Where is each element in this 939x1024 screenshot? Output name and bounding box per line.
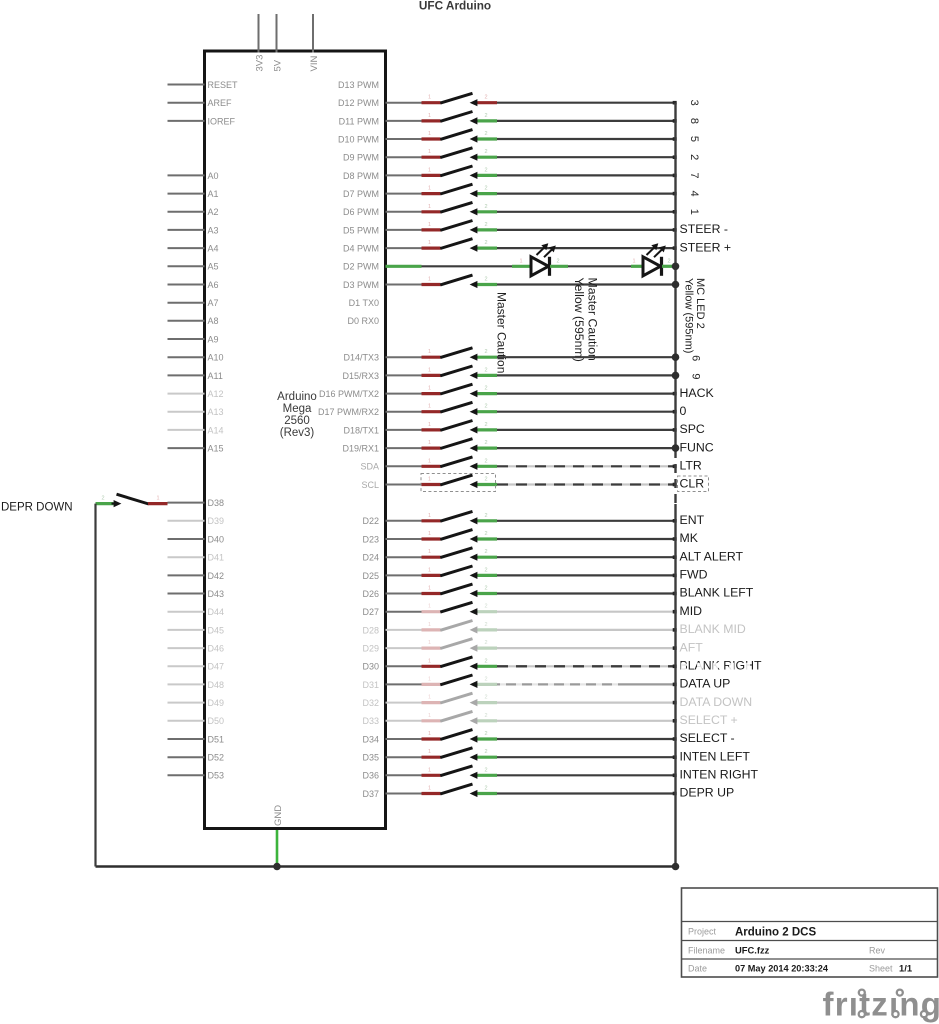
svg-text:1: 1 bbox=[428, 186, 431, 192]
svg-text:D45: D45 bbox=[208, 625, 225, 635]
svg-text:D32: D32 bbox=[362, 698, 379, 708]
svg-text:AFT: AFT bbox=[680, 640, 704, 654]
svg-text:CLR: CLR bbox=[680, 477, 705, 491]
svg-text:INTEN LEFT: INTEN LEFT bbox=[680, 749, 751, 763]
svg-text:D53: D53 bbox=[208, 771, 225, 781]
svg-text:DATA UP: DATA UP bbox=[680, 677, 731, 691]
svg-text:INTEN RIGHT: INTEN RIGHT bbox=[680, 768, 759, 782]
svg-text:D47: D47 bbox=[208, 662, 225, 672]
svg-text:D25: D25 bbox=[362, 571, 379, 581]
svg-text:MC LED 2: MC LED 2 bbox=[694, 278, 706, 329]
svg-text:1: 1 bbox=[428, 513, 431, 519]
svg-text:1: 1 bbox=[428, 240, 431, 246]
svg-text:D8 PWM: D8 PWM bbox=[343, 171, 379, 181]
svg-text:D15/RX3: D15/RX3 bbox=[342, 371, 379, 381]
svg-text:2: 2 bbox=[484, 640, 487, 646]
svg-text:D27: D27 bbox=[362, 607, 379, 617]
svg-text:Master Caution: Master Caution bbox=[495, 292, 509, 373]
svg-text:2: 2 bbox=[484, 713, 487, 719]
svg-text:2560: 2560 bbox=[284, 415, 310, 427]
svg-text:2: 2 bbox=[484, 95, 487, 101]
svg-text:2: 2 bbox=[484, 113, 487, 119]
svg-text:1/1: 1/1 bbox=[899, 963, 912, 974]
svg-text:D1 TX0: D1 TX0 bbox=[349, 298, 379, 308]
svg-text:2: 2 bbox=[484, 658, 487, 664]
svg-text:D19/RX1: D19/RX1 bbox=[342, 444, 379, 454]
svg-text:2: 2 bbox=[484, 477, 487, 483]
svg-text:1: 1 bbox=[428, 277, 431, 283]
svg-text:D35: D35 bbox=[362, 753, 379, 763]
svg-text:A10: A10 bbox=[208, 353, 224, 363]
svg-text:Yellow (595nm): Yellow (595nm) bbox=[572, 278, 586, 362]
svg-text:D49: D49 bbox=[208, 698, 225, 708]
svg-text:1: 1 bbox=[428, 786, 431, 792]
svg-text:D14/TX3: D14/TX3 bbox=[343, 353, 379, 363]
svg-text:A1: A1 bbox=[208, 189, 219, 199]
svg-text:2: 2 bbox=[101, 496, 104, 502]
svg-text:D6 PWM: D6 PWM bbox=[343, 207, 379, 217]
svg-text:2: 2 bbox=[484, 167, 487, 173]
svg-text:A6: A6 bbox=[208, 280, 219, 290]
svg-text:BLANK LEFT: BLANK LEFT bbox=[680, 586, 754, 600]
svg-text:D24: D24 bbox=[362, 553, 379, 563]
svg-text:2: 2 bbox=[484, 404, 487, 410]
svg-text:D38: D38 bbox=[208, 498, 225, 508]
svg-text:1: 1 bbox=[428, 458, 431, 464]
svg-text:2: 2 bbox=[484, 277, 487, 283]
svg-text:5: 5 bbox=[688, 136, 700, 142]
svg-text:A14: A14 bbox=[208, 425, 224, 435]
svg-text:1: 1 bbox=[428, 658, 431, 664]
svg-text:D16 PWM/TX2: D16 PWM/TX2 bbox=[319, 389, 379, 399]
svg-text:AREF: AREF bbox=[208, 98, 233, 108]
svg-text:2: 2 bbox=[484, 622, 487, 628]
svg-text:LTR: LTR bbox=[680, 459, 702, 473]
svg-text:A9: A9 bbox=[208, 334, 219, 344]
svg-text:1: 1 bbox=[428, 440, 431, 446]
svg-text:D43: D43 bbox=[208, 589, 225, 599]
svg-text:D48: D48 bbox=[208, 680, 225, 690]
svg-text:2: 2 bbox=[484, 440, 487, 446]
svg-text:07 May 2014 20:33:24: 07 May 2014 20:33:24 bbox=[735, 964, 829, 974]
svg-text:ALT ALERT: ALT ALERT bbox=[680, 549, 744, 563]
svg-text:D10 PWM: D10 PWM bbox=[338, 134, 379, 144]
svg-text:A15: A15 bbox=[208, 444, 224, 454]
svg-text:D51: D51 bbox=[208, 734, 225, 744]
svg-text:SPC: SPC bbox=[680, 422, 705, 436]
svg-text:1: 1 bbox=[428, 567, 431, 573]
svg-text:1: 1 bbox=[428, 167, 431, 173]
svg-text:1: 1 bbox=[428, 349, 431, 355]
svg-text:4: 4 bbox=[688, 191, 700, 197]
svg-text:1: 1 bbox=[428, 749, 431, 755]
svg-text:D18/TX1: D18/TX1 bbox=[343, 425, 379, 435]
svg-text:2: 2 bbox=[688, 154, 700, 160]
svg-text:D50: D50 bbox=[208, 716, 225, 726]
svg-text:1: 1 bbox=[428, 586, 431, 592]
svg-text:1: 1 bbox=[519, 258, 522, 264]
svg-text:1: 1 bbox=[428, 404, 431, 410]
svg-text:1: 1 bbox=[428, 531, 431, 537]
svg-text:D0 RX0: D0 RX0 bbox=[347, 316, 379, 326]
svg-text:1: 1 bbox=[428, 622, 431, 628]
svg-text:2: 2 bbox=[484, 549, 487, 555]
svg-text:(Rev3): (Rev3) bbox=[280, 427, 315, 439]
svg-text:1: 1 bbox=[428, 113, 431, 119]
svg-text:A12: A12 bbox=[208, 389, 224, 399]
svg-text:D31: D31 bbox=[362, 680, 379, 690]
svg-text:Arduino: Arduino bbox=[277, 391, 317, 403]
svg-text:A13: A13 bbox=[208, 407, 224, 417]
svg-text:SELECT -: SELECT - bbox=[680, 731, 735, 745]
svg-text:D28: D28 bbox=[362, 625, 379, 635]
svg-text:1: 1 bbox=[428, 95, 431, 101]
svg-text:A3: A3 bbox=[208, 225, 219, 235]
svg-text:Yellow (595nm): Yellow (595nm) bbox=[683, 278, 695, 353]
svg-text:Arduino 2 DCS: Arduino 2 DCS bbox=[735, 927, 816, 939]
svg-text:2: 2 bbox=[484, 586, 487, 592]
svg-text:D33: D33 bbox=[362, 716, 379, 726]
svg-text:2: 2 bbox=[484, 531, 487, 537]
svg-text:D26: D26 bbox=[362, 589, 379, 599]
svg-text:STEER +: STEER + bbox=[680, 240, 732, 254]
svg-text:A4: A4 bbox=[208, 244, 219, 254]
svg-text:D46: D46 bbox=[208, 644, 225, 654]
svg-text:2: 2 bbox=[484, 786, 487, 792]
svg-text:GND: GND bbox=[273, 805, 284, 826]
svg-text:Mega: Mega bbox=[283, 403, 312, 415]
svg-text:Sheet: Sheet bbox=[869, 964, 893, 974]
svg-text:1: 1 bbox=[428, 422, 431, 428]
svg-text:2: 2 bbox=[484, 204, 487, 210]
svg-text:D11 PWM: D11 PWM bbox=[339, 116, 379, 126]
svg-text:A0: A0 bbox=[208, 171, 219, 181]
svg-text:1: 1 bbox=[428, 477, 431, 483]
svg-text:1: 1 bbox=[428, 204, 431, 210]
svg-text:5V: 5V bbox=[273, 59, 284, 71]
svg-text:D40: D40 bbox=[208, 534, 225, 544]
svg-text:Rev: Rev bbox=[869, 946, 886, 956]
svg-text:FWD: FWD bbox=[680, 568, 708, 582]
svg-text:RESET: RESET bbox=[208, 80, 239, 90]
svg-text:1: 1 bbox=[428, 149, 431, 155]
svg-text:IOREF: IOREF bbox=[208, 116, 236, 126]
svg-text:D5 PWM: D5 PWM bbox=[343, 225, 379, 235]
svg-text:2: 2 bbox=[484, 386, 487, 392]
svg-text:SCL: SCL bbox=[361, 480, 379, 490]
svg-text:6: 6 bbox=[690, 355, 702, 361]
svg-text:DEPR DOWN: DEPR DOWN bbox=[1, 502, 73, 514]
svg-text:1: 1 bbox=[428, 222, 431, 228]
svg-text:1: 1 bbox=[428, 767, 431, 773]
svg-text:2: 2 bbox=[484, 367, 487, 373]
svg-text:STEER -: STEER - bbox=[680, 222, 729, 236]
svg-text:Date: Date bbox=[688, 964, 707, 974]
svg-text:HACK: HACK bbox=[680, 386, 715, 400]
svg-text:A5: A5 bbox=[208, 262, 219, 272]
svg-text:D17 PWM/RX2: D17 PWM/RX2 bbox=[318, 407, 379, 417]
svg-text:Master Caution: Master Caution bbox=[586, 278, 600, 362]
svg-text:MID: MID bbox=[680, 604, 703, 618]
svg-text:D37: D37 bbox=[362, 789, 379, 799]
svg-text:1: 1 bbox=[428, 367, 431, 373]
svg-text:1: 1 bbox=[428, 676, 431, 682]
svg-text:2: 2 bbox=[484, 567, 487, 573]
svg-text:D7 PWM: D7 PWM bbox=[343, 189, 379, 199]
svg-text:2: 2 bbox=[484, 131, 487, 137]
svg-text:D22: D22 bbox=[362, 516, 379, 526]
svg-text:2: 2 bbox=[484, 422, 487, 428]
svg-text:SDA: SDA bbox=[360, 462, 379, 472]
svg-text:D36: D36 bbox=[362, 771, 379, 781]
svg-text:A11: A11 bbox=[208, 371, 223, 381]
svg-text:3: 3 bbox=[688, 100, 700, 106]
svg-text:D13 PWM: D13 PWM bbox=[338, 80, 379, 90]
svg-text:2: 2 bbox=[484, 767, 487, 773]
svg-text:DATA DOWN: DATA DOWN bbox=[680, 695, 753, 709]
svg-text:ENT: ENT bbox=[680, 513, 705, 527]
svg-text:UFC.fzz: UFC.fzz bbox=[735, 945, 770, 956]
svg-text:2: 2 bbox=[484, 676, 487, 682]
svg-text:1: 1 bbox=[428, 604, 431, 610]
svg-text:SELECT +: SELECT + bbox=[680, 713, 738, 727]
svg-text:9: 9 bbox=[690, 373, 702, 379]
svg-text:D23: D23 bbox=[362, 534, 379, 544]
svg-text:D52: D52 bbox=[208, 753, 225, 763]
svg-text:DEPR UP: DEPR UP bbox=[680, 786, 735, 800]
svg-text:D34: D34 bbox=[362, 734, 379, 744]
svg-text:D12 PWM: D12 PWM bbox=[338, 98, 379, 108]
svg-text:7: 7 bbox=[688, 172, 700, 178]
svg-text:UFC Arduino: UFC Arduino bbox=[419, 0, 491, 13]
svg-text:A8: A8 bbox=[208, 316, 219, 326]
svg-text:1: 1 bbox=[632, 258, 635, 264]
svg-text:D30: D30 bbox=[362, 662, 379, 672]
svg-text:2: 2 bbox=[484, 695, 487, 701]
svg-text:Project: Project bbox=[688, 927, 717, 937]
svg-text:1: 1 bbox=[428, 731, 431, 737]
svg-text:D4 PWM: D4 PWM bbox=[343, 244, 379, 254]
svg-text:2: 2 bbox=[556, 258, 559, 264]
svg-text:D39: D39 bbox=[208, 516, 225, 526]
svg-text:2: 2 bbox=[484, 604, 487, 610]
svg-text:VIN: VIN bbox=[309, 56, 320, 72]
svg-text:0: 0 bbox=[680, 404, 687, 418]
svg-text:2: 2 bbox=[484, 349, 487, 355]
svg-text:2: 2 bbox=[484, 749, 487, 755]
svg-text:1: 1 bbox=[688, 209, 700, 215]
svg-text:2: 2 bbox=[484, 149, 487, 155]
svg-text:D2 PWM: D2 PWM bbox=[343, 262, 379, 272]
svg-text:FUNC: FUNC bbox=[680, 440, 714, 454]
svg-text:D3 PWM: D3 PWM bbox=[343, 280, 379, 290]
svg-text:2: 2 bbox=[484, 731, 487, 737]
svg-text:3V3: 3V3 bbox=[255, 55, 266, 72]
svg-text:2: 2 bbox=[484, 458, 487, 464]
svg-text:BLANK MID: BLANK MID bbox=[680, 622, 746, 636]
svg-text:Filename: Filename bbox=[688, 946, 725, 956]
svg-text:1: 1 bbox=[428, 640, 431, 646]
svg-text:D42: D42 bbox=[208, 571, 225, 581]
svg-text:2: 2 bbox=[667, 258, 670, 264]
svg-text:2: 2 bbox=[484, 186, 487, 192]
svg-text:1: 1 bbox=[428, 695, 431, 701]
svg-text:MK: MK bbox=[680, 531, 699, 545]
svg-text:1: 1 bbox=[428, 131, 431, 137]
svg-text:D29: D29 bbox=[362, 644, 379, 654]
svg-text:8: 8 bbox=[688, 118, 700, 124]
svg-text:2: 2 bbox=[484, 222, 487, 228]
svg-text:D44: D44 bbox=[208, 607, 225, 617]
svg-text:1: 1 bbox=[428, 549, 431, 555]
svg-text:D41: D41 bbox=[208, 553, 225, 563]
svg-text:2: 2 bbox=[484, 513, 487, 519]
svg-text:D9 PWM: D9 PWM bbox=[343, 153, 379, 163]
svg-text:2: 2 bbox=[484, 240, 487, 246]
svg-text:A7: A7 bbox=[208, 298, 219, 308]
svg-text:1: 1 bbox=[156, 496, 159, 502]
svg-text:A2: A2 bbox=[208, 207, 219, 217]
svg-text:1: 1 bbox=[428, 713, 431, 719]
svg-text:1: 1 bbox=[428, 386, 431, 392]
